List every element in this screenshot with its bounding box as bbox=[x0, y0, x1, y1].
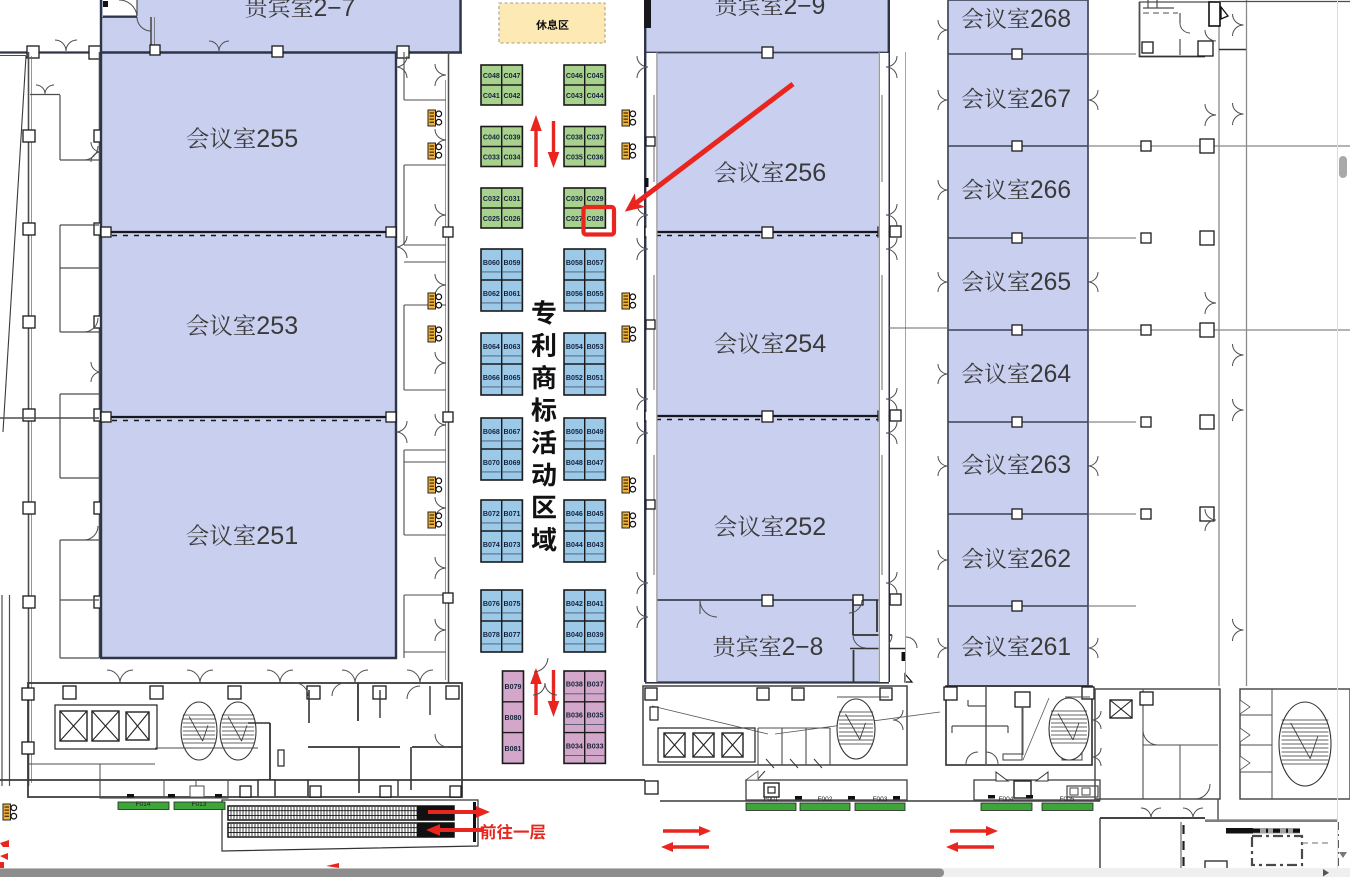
svg-text:2−7: 2−7 bbox=[314, 0, 356, 22]
svg-text:F002: F002 bbox=[818, 796, 833, 803]
svg-text:C048: C048 bbox=[483, 72, 500, 80]
svg-text:C035: C035 bbox=[566, 153, 583, 161]
svg-text:B037: B037 bbox=[587, 681, 604, 689]
svg-text:262: 262 bbox=[1030, 546, 1071, 573]
svg-text:2−8: 2−8 bbox=[782, 634, 824, 661]
svg-text:B054: B054 bbox=[566, 343, 583, 351]
svg-text:F005: F005 bbox=[1060, 796, 1075, 803]
svg-text:B035: B035 bbox=[587, 712, 604, 720]
svg-text:B050: B050 bbox=[566, 428, 583, 436]
svg-text:B045: B045 bbox=[587, 510, 604, 518]
svg-text:B044: B044 bbox=[566, 541, 583, 549]
svg-text:B055: B055 bbox=[587, 290, 604, 298]
svg-text:B063: B063 bbox=[504, 343, 521, 351]
svg-text:B062: B062 bbox=[483, 290, 500, 298]
svg-text:261: 261 bbox=[1030, 634, 1071, 661]
svg-text:B051: B051 bbox=[587, 374, 604, 382]
svg-text:F004: F004 bbox=[999, 796, 1014, 803]
svg-text:B070: B070 bbox=[483, 459, 500, 467]
svg-text:266: 266 bbox=[1030, 177, 1071, 204]
svg-text:B061: B061 bbox=[504, 290, 521, 298]
svg-text:C040: C040 bbox=[483, 133, 500, 141]
svg-text:F003: F003 bbox=[873, 796, 888, 803]
svg-text:B041: B041 bbox=[587, 600, 604, 608]
svg-text:264: 264 bbox=[1030, 361, 1071, 388]
svg-text:C041: C041 bbox=[483, 92, 500, 100]
svg-text:C033: C033 bbox=[483, 153, 500, 161]
svg-text:B059: B059 bbox=[504, 259, 521, 267]
svg-text:B074: B074 bbox=[483, 541, 500, 549]
svg-text:254: 254 bbox=[784, 330, 826, 358]
svg-text:B043: B043 bbox=[587, 541, 604, 549]
svg-text:B033: B033 bbox=[587, 742, 604, 750]
svg-text:B068: B068 bbox=[483, 428, 500, 436]
svg-text:B047: B047 bbox=[587, 459, 604, 467]
svg-text:B080: B080 bbox=[505, 714, 522, 722]
svg-text:C034: C034 bbox=[504, 153, 521, 161]
svg-text:C032: C032 bbox=[483, 195, 500, 203]
svg-text:B078: B078 bbox=[483, 631, 500, 639]
svg-text:B069: B069 bbox=[504, 459, 521, 467]
svg-text:C025: C025 bbox=[483, 215, 500, 223]
svg-text:255: 255 bbox=[256, 125, 298, 153]
svg-text:252: 252 bbox=[784, 513, 826, 541]
svg-text:251: 251 bbox=[256, 522, 298, 550]
svg-text:C038: C038 bbox=[566, 133, 583, 141]
svg-text:C028: C028 bbox=[587, 215, 604, 223]
svg-text:B067: B067 bbox=[504, 428, 521, 436]
svg-text:C030: C030 bbox=[566, 195, 583, 203]
svg-text:256: 256 bbox=[784, 159, 826, 187]
svg-text:C037: C037 bbox=[587, 133, 604, 141]
svg-text:C042: C042 bbox=[504, 92, 521, 100]
svg-text:C026: C026 bbox=[504, 215, 521, 223]
svg-text:265: 265 bbox=[1030, 269, 1071, 296]
svg-text:263: 263 bbox=[1030, 452, 1071, 479]
svg-text:C039: C039 bbox=[504, 133, 521, 141]
svg-text:C043: C043 bbox=[566, 92, 583, 100]
svg-text:B034: B034 bbox=[566, 742, 583, 750]
svg-text:B076: B076 bbox=[483, 600, 500, 608]
svg-text:C031: C031 bbox=[504, 195, 521, 203]
svg-text:F013: F013 bbox=[192, 801, 207, 808]
svg-text:B066: B066 bbox=[483, 374, 500, 382]
svg-text:C044: C044 bbox=[587, 92, 604, 100]
svg-text:B075: B075 bbox=[504, 600, 521, 608]
svg-text:B053: B053 bbox=[587, 343, 604, 351]
svg-text:B081: B081 bbox=[505, 745, 522, 753]
svg-text:F001: F001 bbox=[764, 796, 779, 803]
svg-text:253: 253 bbox=[256, 312, 298, 340]
svg-text:B058: B058 bbox=[566, 259, 583, 267]
svg-text:B040: B040 bbox=[566, 631, 583, 639]
svg-text:B072: B072 bbox=[483, 510, 500, 518]
svg-text:B057: B057 bbox=[587, 259, 604, 267]
svg-text:B073: B073 bbox=[504, 541, 521, 549]
svg-text:C029: C029 bbox=[587, 195, 604, 203]
svg-text:B079: B079 bbox=[505, 683, 522, 691]
svg-text:B060: B060 bbox=[483, 259, 500, 267]
svg-text:B048: B048 bbox=[566, 459, 583, 467]
svg-text:267: 267 bbox=[1030, 86, 1071, 113]
svg-text:268: 268 bbox=[1030, 6, 1071, 33]
svg-text:B056: B056 bbox=[566, 290, 583, 298]
svg-text:C036: C036 bbox=[587, 153, 604, 161]
svg-text:B039: B039 bbox=[587, 631, 604, 639]
svg-text:B049: B049 bbox=[587, 428, 604, 436]
svg-text:B077: B077 bbox=[504, 631, 521, 639]
svg-text:C045: C045 bbox=[587, 72, 604, 80]
svg-text:C027: C027 bbox=[566, 215, 583, 223]
svg-text:2−9: 2−9 bbox=[784, 0, 826, 20]
svg-text:B052: B052 bbox=[566, 374, 583, 382]
svg-text:F014: F014 bbox=[136, 801, 151, 808]
svg-text:C046: C046 bbox=[566, 72, 583, 80]
svg-text:C047: C047 bbox=[504, 72, 521, 80]
svg-text:B042: B042 bbox=[566, 600, 583, 608]
svg-text:B065: B065 bbox=[504, 374, 521, 382]
svg-text:B071: B071 bbox=[504, 510, 521, 518]
svg-text:B064: B064 bbox=[483, 343, 500, 351]
svg-text:B038: B038 bbox=[566, 681, 583, 689]
svg-text:B046: B046 bbox=[566, 510, 583, 518]
svg-text:B036: B036 bbox=[566, 712, 583, 720]
